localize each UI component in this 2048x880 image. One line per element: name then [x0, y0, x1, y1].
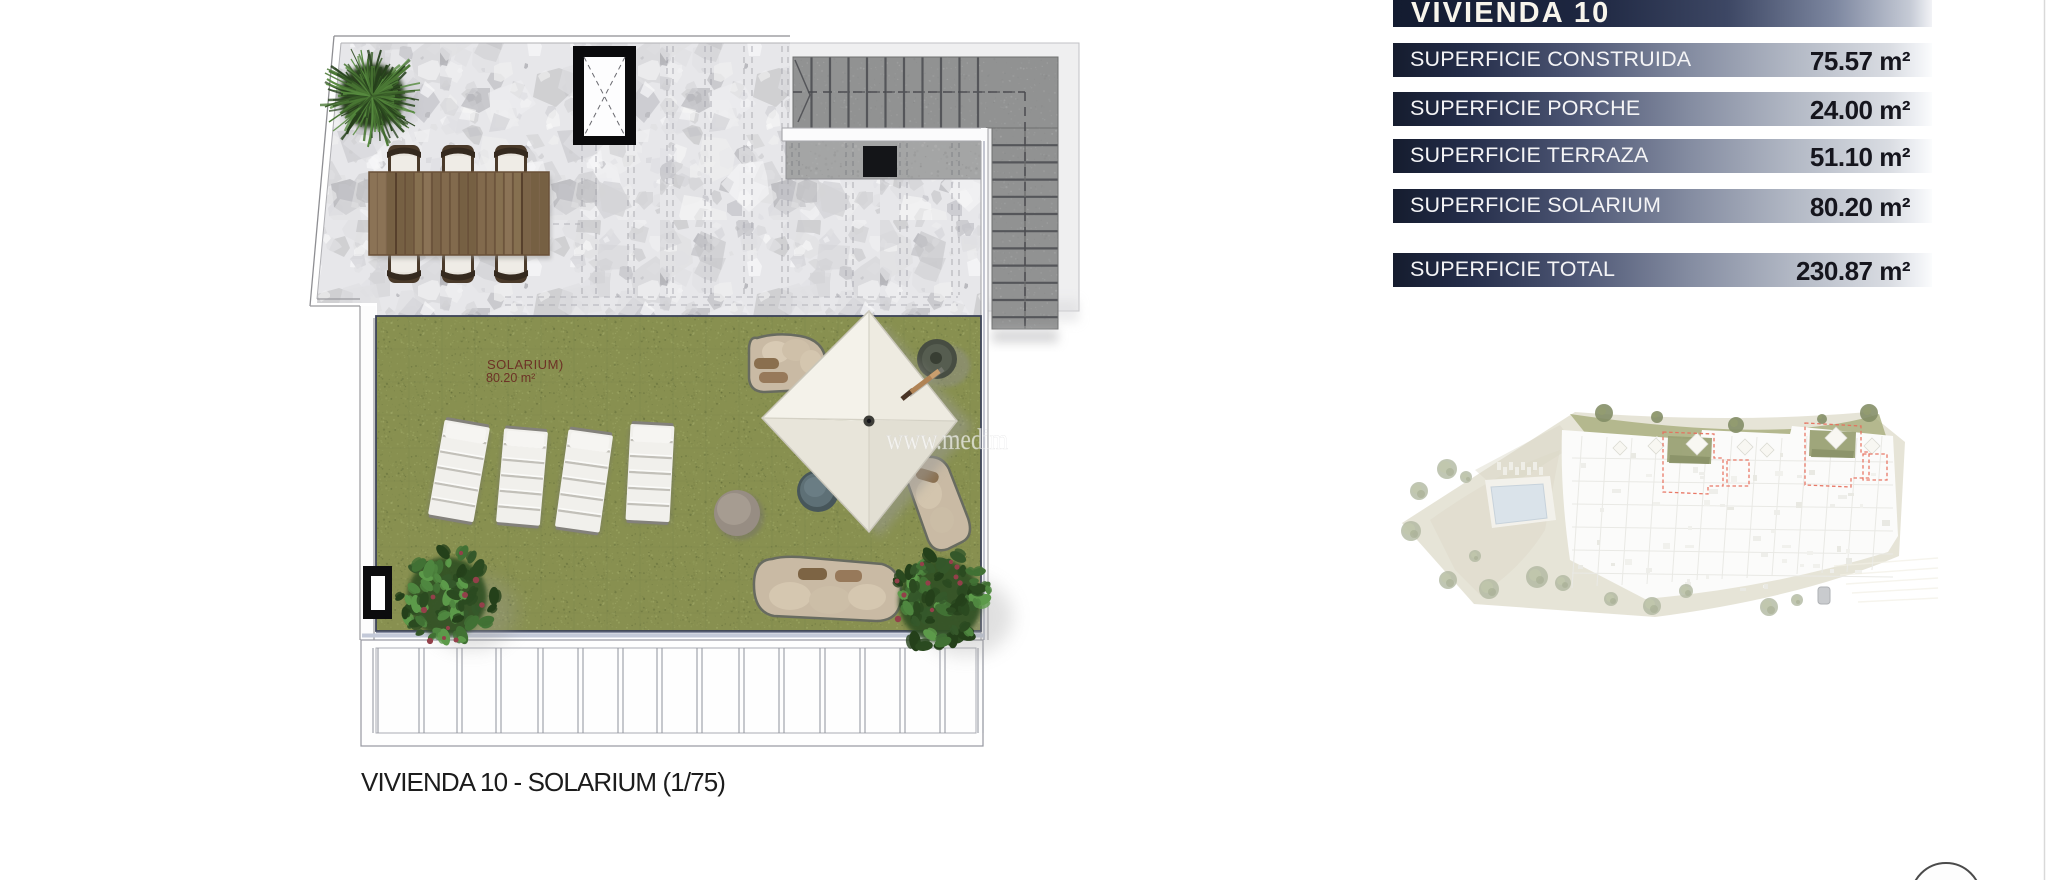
- svg-text:80.20 m²: 80.20 m²: [486, 371, 535, 385]
- svg-text:VIVIENDA 10 - SOLARIUM (1/75): VIVIENDA 10 - SOLARIUM (1/75): [361, 767, 725, 797]
- svg-text:SOLARIUM): SOLARIUM): [487, 357, 564, 372]
- svg-text:www.medim: www.medim: [886, 423, 1008, 456]
